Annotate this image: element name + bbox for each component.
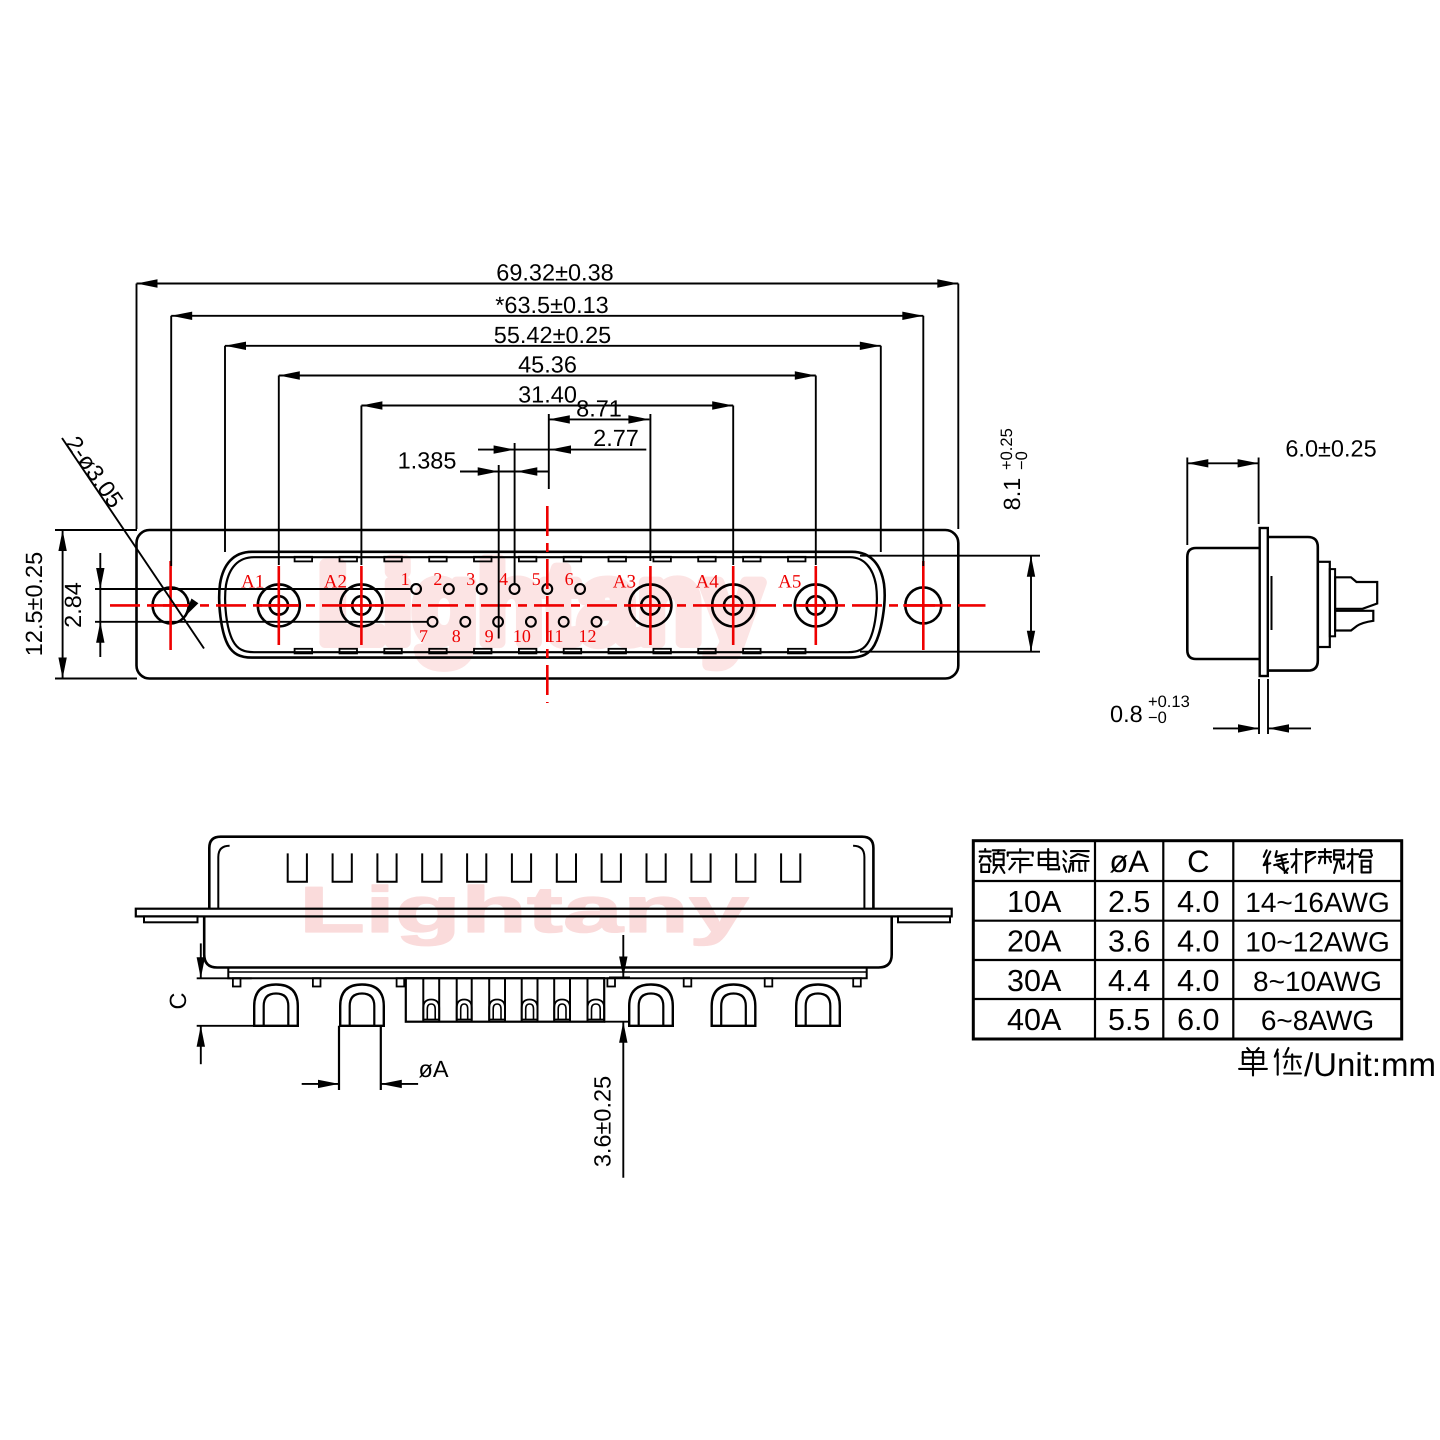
svg-text:10A: 10A (1007, 885, 1062, 919)
svg-text:8.1: 8.1 (999, 478, 1025, 511)
svg-text:6.0: 6.0 (1177, 1003, 1219, 1037)
svg-text:1.385: 1.385 (398, 448, 457, 474)
svg-text:6.0±0.25: 6.0±0.25 (1285, 436, 1376, 462)
svg-text:C: C (165, 992, 191, 1009)
svg-text:40A: 40A (1007, 1003, 1062, 1037)
svg-text:3.6: 3.6 (1108, 924, 1150, 958)
svg-text:2.84: 2.84 (60, 582, 86, 628)
svg-text:4.0: 4.0 (1177, 964, 1219, 998)
svg-text:20A: 20A (1007, 924, 1062, 958)
svg-text:A2: A2 (324, 572, 347, 593)
svg-text:A1: A1 (241, 572, 264, 593)
svg-text:8.71: 8.71 (576, 396, 622, 422)
svg-text:6~8AWG: 6~8AWG (1261, 1005, 1374, 1036)
svg-text:A3: A3 (613, 572, 636, 593)
svg-text:69.32±0.38: 69.32±0.38 (496, 260, 613, 286)
svg-text:4: 4 (499, 569, 508, 589)
svg-text:2.5: 2.5 (1108, 885, 1150, 919)
svg-text:30A: 30A (1007, 964, 1062, 998)
svg-text:−0: −0 (1148, 709, 1167, 727)
svg-text:øA: øA (1109, 844, 1149, 879)
svg-text:A4: A4 (696, 572, 720, 593)
svg-text:2.77: 2.77 (593, 425, 639, 451)
svg-text:5.5: 5.5 (1108, 1003, 1150, 1037)
svg-text:5: 5 (532, 569, 541, 589)
svg-text:10~12AWG: 10~12AWG (1245, 926, 1389, 957)
svg-text:*63.5±0.13: *63.5±0.13 (495, 292, 609, 318)
svg-text:3.6±0.25: 3.6±0.25 (590, 1076, 616, 1167)
svg-text:1: 1 (401, 569, 410, 589)
svg-text:3: 3 (466, 569, 475, 589)
svg-text:øA: øA (418, 1056, 448, 1082)
svg-text:14~16AWG: 14~16AWG (1245, 887, 1389, 918)
svg-text:31.40: 31.40 (518, 382, 577, 408)
svg-text:−0: −0 (1013, 451, 1031, 470)
svg-text:55.42±0.25: 55.42±0.25 (494, 322, 611, 348)
svg-text:4.4: 4.4 (1108, 964, 1150, 998)
svg-text:4.0: 4.0 (1177, 885, 1219, 919)
svg-text:0.8: 0.8 (1110, 701, 1143, 727)
svg-text:45.36: 45.36 (518, 352, 577, 378)
svg-text:2: 2 (433, 569, 442, 589)
svg-text:4.0: 4.0 (1177, 924, 1219, 958)
svg-text:7: 7 (419, 626, 428, 646)
svg-text:9: 9 (485, 626, 494, 646)
svg-text:10: 10 (513, 626, 531, 646)
svg-text:11: 11 (546, 626, 563, 646)
svg-text:A5: A5 (778, 572, 801, 593)
svg-text:6: 6 (565, 569, 574, 589)
svg-text:8~10AWG: 8~10AWG (1253, 966, 1382, 997)
svg-text:/Unit:mm: /Unit:mm (1304, 1046, 1436, 1083)
svg-text:8: 8 (452, 626, 461, 646)
svg-text:C: C (1187, 844, 1209, 879)
svg-text:12: 12 (579, 626, 597, 646)
svg-text:12.5±0.25: 12.5±0.25 (21, 552, 47, 656)
